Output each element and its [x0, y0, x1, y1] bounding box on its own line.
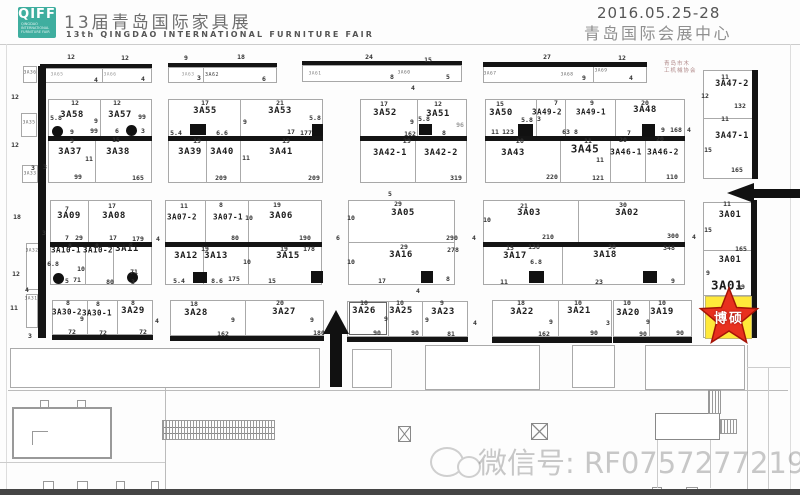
dimension-number: 3 — [197, 74, 201, 82]
booth-label: 3A26 — [352, 306, 376, 316]
dimension-number: 17 — [378, 277, 386, 285]
dimension-number: 10 — [245, 214, 253, 222]
booth-cell — [655, 413, 720, 440]
dimension-number: 9 — [661, 126, 665, 134]
dimension-number: 11 — [721, 115, 729, 123]
dimension-number: 9 — [590, 99, 594, 107]
plan-line — [240, 141, 241, 183]
dimension-number: 96 — [456, 121, 464, 129]
dimension-number: 4 — [25, 286, 29, 294]
left-arrow-shaft — [754, 189, 800, 198]
booth-label: 3A28 — [184, 308, 208, 318]
dimension-number: 10 — [360, 299, 368, 307]
dimension-number: 20 — [516, 137, 524, 145]
dimension-number: 20 — [276, 299, 284, 307]
booth-label: 3A62 — [205, 72, 219, 78]
dimension-number: 19 — [280, 245, 288, 253]
left-arrow-icon — [727, 183, 754, 203]
wall-bar — [48, 136, 152, 141]
dimension-number: 5.8 — [418, 115, 430, 123]
booth-label: 3A06 — [269, 211, 293, 221]
booth-cell — [425, 345, 540, 390]
dimension-number: 7 — [65, 234, 69, 242]
wechat-watermark: 微信号: RF075727721959 — [478, 440, 800, 482]
dimension-number: 17 — [108, 202, 116, 210]
dimension-number: 209 — [308, 174, 320, 182]
dimension-number: 8 — [131, 299, 135, 307]
dimension-number: 162 — [217, 330, 229, 338]
dimension-number: 9 — [440, 299, 444, 307]
dimension-number: 17 — [287, 128, 295, 136]
dimension-number: 9 — [70, 128, 74, 136]
dimension-number: 10 — [77, 265, 85, 273]
dimension-number: 12 — [701, 92, 709, 100]
dimension-number: 278 — [447, 246, 459, 254]
dimension-number: 29 — [394, 200, 402, 208]
booth-label: 3A63 — [182, 73, 195, 78]
booth-label: 3A11 — [115, 244, 139, 254]
pillar-square — [643, 271, 657, 283]
plan-line — [240, 99, 241, 136]
booth-label: 3A35 — [23, 121, 36, 126]
dimension-number: 6.6 — [216, 129, 228, 137]
dimension-number: 132 — [734, 102, 746, 110]
booth-label: 3A07-2 — [167, 213, 197, 222]
booth-label: 3A69 — [595, 69, 608, 74]
dimension-number: 63 — [562, 128, 570, 136]
dimension-number: 5.8 — [521, 116, 533, 124]
booth-cell — [10, 348, 320, 388]
dimension-number: 3 — [43, 163, 47, 171]
dimension-number: 8.6 — [211, 277, 223, 285]
plan-line — [0, 462, 165, 463]
dimension-number: 8 — [66, 299, 70, 307]
dimension-number: 90 — [373, 329, 381, 337]
dimension-number: 9 — [310, 316, 314, 324]
dimension-number: 10 — [574, 299, 582, 307]
furniture-fair-floorplan: QIFF QINGDAO INTERNATIONAL FURNITURE FAI… — [0, 0, 800, 495]
booth-label: 3A02 — [615, 208, 639, 218]
dimension-number: 8 — [574, 128, 578, 136]
dimension-number: 18 — [517, 299, 525, 307]
dimension-number: 17 — [380, 100, 388, 108]
dimension-number: 9 — [549, 318, 553, 326]
booth-label: 3A61 — [309, 72, 322, 77]
dimension-number: 18 — [190, 300, 198, 308]
dimension-number: 138 — [528, 243, 540, 251]
plan-line — [8, 390, 788, 391]
dimension-number: 4 — [94, 76, 98, 84]
dimension-number: 3 — [537, 115, 541, 123]
dimension-number: 99 — [138, 113, 146, 121]
plan-line — [6, 44, 7, 491]
plan-line — [117, 300, 118, 335]
booth-label: 3A08 — [102, 211, 126, 221]
booth-cell — [645, 345, 745, 390]
dimension-number: 290 — [446, 234, 458, 242]
dimension-number: 9 — [384, 315, 388, 323]
booth-label: 3A01 — [719, 255, 741, 265]
dimension-number: 220 — [546, 173, 558, 181]
dimension-number: 15 — [496, 100, 504, 108]
dimension-number: 12 — [113, 99, 121, 107]
booth-label: 3A43 — [501, 148, 525, 158]
dimension-number: 11 — [584, 137, 592, 145]
dimension-number: 18 — [237, 53, 245, 61]
dimension-number: 10 — [347, 214, 355, 222]
dimension-number: 9 — [425, 316, 429, 324]
booth-label: 3A68 — [561, 73, 574, 78]
dimension-number: 319 — [450, 174, 462, 182]
dimension-number: 7 — [627, 129, 631, 137]
booth-cell — [12, 407, 112, 459]
dimension-number: 12 — [11, 93, 19, 101]
booth-label: 3A21 — [567, 306, 591, 316]
booth-cell — [302, 65, 462, 82]
booth-label: 3A50 — [489, 108, 513, 118]
crossed-box — [531, 423, 548, 440]
plan-line — [578, 200, 579, 242]
booth-label: 3A29 — [121, 306, 145, 316]
dimension-number: 20 — [656, 135, 664, 143]
dimension-number: 5.8 — [309, 114, 321, 122]
dimension-number: 9 — [80, 315, 84, 323]
dimension-number: 10 — [658, 299, 666, 307]
booth-label: 3A32 — [26, 249, 39, 254]
dimension-number: 177 — [300, 129, 312, 137]
dimension-number: 348 — [663, 244, 675, 252]
plan-line — [32, 431, 33, 445]
pillar-square — [193, 272, 207, 283]
booth-label: 3A66 — [104, 73, 117, 78]
dimension-number: 90 — [676, 329, 684, 337]
dimension-number: 81 — [447, 330, 455, 338]
dimension-number: 5.8 — [50, 114, 62, 122]
dimension-number: 72 — [139, 328, 147, 336]
booth-label: 3A36 — [24, 71, 37, 76]
dimension-number: 175 — [228, 275, 240, 283]
dimension-number: 12 — [67, 53, 75, 61]
dimension-number: 9 — [582, 74, 586, 82]
dimension-number: 300 — [667, 232, 679, 240]
dimension-number: 71 — [73, 276, 81, 284]
booth-label: 3A33 — [24, 172, 37, 177]
dimension-number: 20 — [641, 99, 649, 107]
dimension-number: 4 — [156, 235, 160, 243]
booth-label: 3A49-1 — [576, 108, 606, 117]
dimension-number: 209 — [215, 174, 227, 182]
booth-label: 3A12 — [174, 251, 198, 261]
booth-label: 3A52 — [373, 108, 397, 118]
column-dot — [52, 126, 63, 137]
dimension-number: 10 — [396, 299, 404, 307]
dimension-number: 90 — [590, 329, 598, 337]
booth-label: 3A22 — [510, 307, 534, 317]
dimension-number: 4 — [692, 233, 696, 241]
plan-line — [248, 247, 249, 285]
plan-line — [206, 141, 207, 183]
dimension-number: 19 — [201, 245, 209, 253]
dimension-number: 19 — [193, 137, 201, 145]
dimension-number: 8 — [219, 201, 223, 209]
dimension-number: 210 — [542, 233, 554, 241]
booth-label: 3A40 — [210, 147, 234, 157]
dimension-number: 15 — [112, 136, 120, 144]
dimension-number: 72 — [99, 329, 107, 337]
dimension-number: 19 — [282, 137, 290, 145]
dimension-number: 190 — [299, 234, 311, 242]
booth-label: 3A42-1 — [373, 148, 407, 158]
dimension-number: 10 — [347, 258, 355, 266]
dimension-number: 9 — [243, 118, 247, 126]
dimension-number: 99 — [90, 127, 98, 135]
dimension-number: 23 — [595, 278, 603, 286]
booth-label: 3A17 — [503, 251, 527, 261]
dimension-number: 12 — [618, 54, 626, 62]
dimension-number: 15 — [704, 146, 712, 154]
dimension-number: 4 — [473, 319, 477, 327]
dimension-number: 29 — [400, 243, 408, 251]
booth-label: 3A55 — [193, 106, 217, 116]
dimension-number: 168 — [670, 126, 682, 134]
dimension-number: 8 — [446, 275, 450, 283]
wall-bar — [170, 336, 324, 341]
pillar-square — [190, 124, 206, 135]
wall-bar — [165, 242, 322, 247]
dimension-number: 9 — [94, 117, 98, 125]
dimension-number: 11 — [242, 154, 250, 162]
dimension-number: 80 — [106, 278, 114, 286]
dimension-number: 9 — [646, 318, 650, 326]
booth-cell — [352, 349, 392, 388]
plan-line — [203, 67, 204, 83]
plan-line — [0, 489, 800, 495]
dimension-number: 80 — [231, 234, 239, 242]
dimension-number: 19 — [273, 201, 281, 209]
dimension-number: 178 — [303, 245, 315, 253]
wall-bar — [483, 62, 647, 67]
dimension-number: 165 — [735, 245, 747, 253]
booth-label: 3A46-1 — [610, 148, 642, 157]
booth-label: 3A39 — [178, 147, 202, 157]
plan-line — [558, 300, 559, 337]
plan-line — [32, 431, 48, 432]
booth-label: 3A23 — [431, 307, 455, 317]
wall-bar — [752, 70, 758, 179]
floor-plan: 3A583A573A373A383A553A533A393A403A413A52… — [0, 0, 800, 495]
hatch-area — [720, 419, 737, 434]
booth-label: 3A65 — [51, 73, 64, 78]
dimension-number: 4 — [687, 126, 691, 134]
dimension-number: 7 — [554, 99, 558, 107]
booth-label: 3A37 — [58, 147, 82, 157]
dimension-number: 3 — [141, 127, 145, 135]
dimension-number: 3 — [31, 164, 35, 172]
dimension-number: 110 — [666, 173, 678, 181]
dimension-number: 11 — [596, 156, 604, 164]
dimension-number: 4 — [472, 234, 476, 242]
dimension-number: 21 — [520, 202, 528, 210]
booth-label: 3A38 — [106, 147, 130, 157]
dimension-number: 8 — [95, 242, 99, 250]
plan-line — [100, 99, 101, 136]
plan-line — [562, 247, 563, 285]
dimension-number: 9 — [671, 277, 675, 285]
dimension-number: 179 — [132, 235, 144, 243]
pillar-square — [419, 124, 432, 135]
hatch-area — [708, 390, 721, 414]
dimension-number: 8 — [442, 129, 446, 137]
column-dot — [53, 273, 64, 284]
dimension-number: 162 — [538, 330, 550, 338]
dimension-number: 29 — [403, 137, 411, 145]
plan-line — [560, 141, 561, 183]
booth-label: 3A46-2 — [647, 148, 679, 157]
booth-cell — [77, 400, 86, 408]
dimension-number: 15 — [506, 244, 514, 252]
booth-label: 3A31 — [25, 297, 38, 302]
dimension-number: 4 — [155, 317, 159, 325]
dimension-number: 6 — [115, 127, 119, 135]
up-arrow-shaft — [330, 333, 342, 387]
dimension-number: 9 — [184, 54, 188, 62]
dimension-number: 90 — [639, 330, 647, 338]
dimension-number: 8 — [68, 242, 72, 250]
wall-bar — [40, 64, 152, 68]
dimension-number: 7 — [65, 205, 69, 213]
pillar-square — [312, 124, 323, 136]
booth-label: 3A60 — [398, 71, 411, 76]
booth-label: 3A57 — [108, 110, 132, 120]
pillar-square — [421, 271, 433, 283]
dimension-number: 5 — [65, 277, 69, 285]
dimension-number: 12 — [434, 100, 442, 108]
dimension-number: 12 — [11, 141, 19, 149]
plan-line — [95, 141, 96, 183]
dimension-number: 11 — [721, 73, 729, 81]
booth-label: 3A58 — [60, 110, 84, 120]
booth-label: 3A16 — [389, 250, 413, 260]
dimension-number: 29 — [75, 234, 83, 242]
dimension-number: 3 — [606, 319, 610, 327]
booth-label: 3A67 — [484, 72, 497, 77]
booth-label: 3A05 — [391, 208, 415, 218]
dimension-number: 15 — [424, 56, 432, 64]
dimension-number: 15 — [704, 226, 712, 234]
wall-bar — [38, 66, 46, 338]
dimension-number: 20 — [619, 136, 627, 144]
booth-label: 3A25 — [389, 306, 413, 316]
plan-line — [205, 200, 206, 242]
dimension-number: 21 — [276, 99, 284, 107]
booth-label: 3A41 — [269, 147, 293, 157]
dimension-number: 4 — [416, 287, 420, 295]
dimension-number: 11 — [10, 304, 18, 312]
dimension-number: 99 — [74, 173, 82, 181]
plan-line — [87, 300, 88, 335]
wall-bar — [168, 63, 277, 67]
dimension-number: 3 — [131, 278, 135, 286]
dimension-number: 9 — [410, 118, 414, 126]
booth-cell — [168, 99, 323, 183]
dimension-number: 11 — [180, 202, 188, 210]
dimension-number: 24 — [365, 53, 373, 61]
dimension-number: 8 — [390, 73, 394, 81]
dimension-number: 4 — [411, 84, 415, 92]
dimension-number: 71 — [130, 268, 138, 276]
pillar-square — [642, 124, 655, 137]
up-arrow-icon — [323, 310, 349, 334]
dimension-number: 123 — [502, 128, 514, 136]
dimension-number: 10 — [243, 258, 251, 266]
dimension-number: 30 — [608, 243, 616, 251]
dimension-number: 5.4 — [173, 277, 185, 285]
wall-bar — [613, 337, 692, 343]
dimension-number: 90 — [411, 329, 419, 337]
plan-line — [645, 141, 646, 183]
dimension-number: 121 — [592, 174, 604, 182]
dimension-number: 17 — [109, 234, 117, 242]
pillar-square — [518, 124, 533, 136]
dimension-number: 12 — [12, 270, 20, 278]
booth-label: 3A47-1 — [715, 131, 749, 141]
dimension-number: 6 — [336, 234, 340, 242]
booth-label: 3A42-2 — [424, 148, 458, 158]
plan-line — [0, 44, 800, 45]
booth-cell — [572, 345, 615, 388]
wall-bar — [302, 61, 462, 65]
dimension-number: 3 — [28, 332, 32, 340]
dimension-number: 18 — [13, 213, 21, 221]
plan-line — [615, 99, 616, 136]
dimension-number: 12 — [71, 99, 79, 107]
dimension-number: 72 — [68, 328, 76, 336]
dimension-number: 6 — [262, 75, 266, 83]
booth-label: 3A27 — [272, 307, 296, 317]
dimension-number: 10 — [623, 299, 631, 307]
plan-line — [415, 141, 416, 183]
booth-label: 3A07-1 — [213, 213, 243, 222]
dimension-number: 3 — [42, 229, 46, 237]
pillar-square — [529, 271, 544, 283]
dimension-number: 15 — [268, 277, 276, 285]
dimension-number: 8 — [96, 300, 100, 308]
dimension-number: 30 — [619, 201, 627, 209]
hatch-area — [162, 420, 275, 440]
dimension-number: 165 — [132, 174, 144, 182]
booth-label: 3A30-1 — [82, 309, 112, 318]
dimension-number: 6.8 — [530, 258, 542, 266]
plan-line — [245, 300, 246, 336]
wall-bar — [492, 337, 612, 343]
booth-label: 3A18 — [593, 250, 617, 260]
dimension-number: 165 — [731, 166, 743, 174]
booth-label: 3A01 — [719, 210, 741, 220]
column-dot — [126, 125, 137, 136]
exhibitor-name: 博硕 — [714, 308, 744, 327]
dimension-number: 11 — [491, 128, 499, 136]
dimension-number: 9 — [70, 137, 74, 145]
dimension-number: 6.8 — [47, 260, 59, 268]
booth-label: 3A10-1 — [51, 246, 81, 255]
dimension-number: 11 — [500, 278, 508, 286]
pillar-square — [311, 271, 323, 283]
dimension-number: 9 — [231, 316, 235, 324]
booth-cell — [40, 400, 49, 408]
dimension-number: 4 — [141, 75, 145, 83]
dimension-number: 17 — [201, 99, 209, 107]
dimension-number: 12 — [121, 54, 129, 62]
